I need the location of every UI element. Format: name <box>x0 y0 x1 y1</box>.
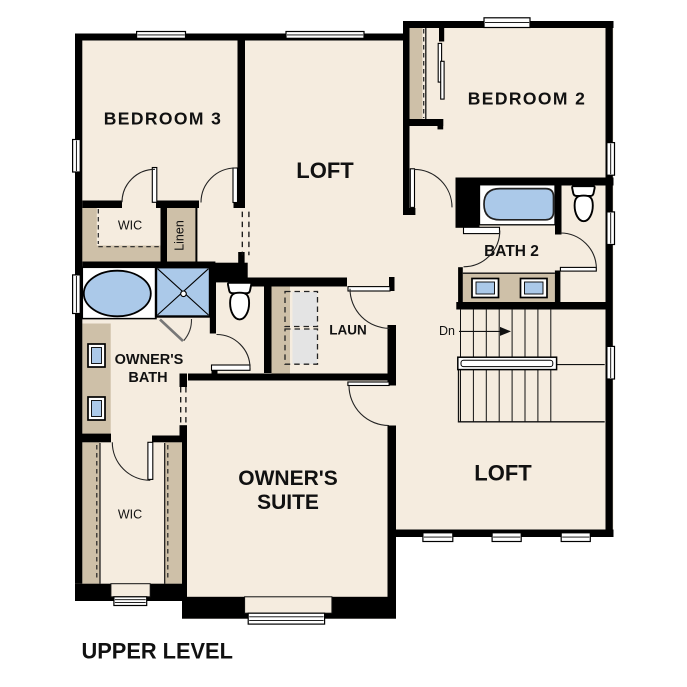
svg-text:BEDROOM 3: BEDROOM 3 <box>104 109 223 129</box>
svg-text:Dn: Dn <box>439 324 455 338</box>
svg-text:LOFT: LOFT <box>296 158 354 183</box>
svg-text:BATH: BATH <box>128 370 167 386</box>
svg-text:WIC: WIC <box>118 219 142 233</box>
svg-text:OWNER'S: OWNER'S <box>238 467 338 490</box>
svg-text:BATH 2: BATH 2 <box>484 243 539 260</box>
svg-text:LAUN: LAUN <box>329 323 367 338</box>
svg-text:OWNER'S: OWNER'S <box>115 352 184 368</box>
svg-text:SUITE: SUITE <box>257 491 319 514</box>
svg-text:BEDROOM 2: BEDROOM 2 <box>468 89 587 109</box>
svg-text:LOFT: LOFT <box>474 461 532 486</box>
svg-text:Linen: Linen <box>173 220 187 251</box>
svg-text:WIC: WIC <box>118 508 142 522</box>
svg-text:UPPER LEVEL: UPPER LEVEL <box>82 639 233 664</box>
